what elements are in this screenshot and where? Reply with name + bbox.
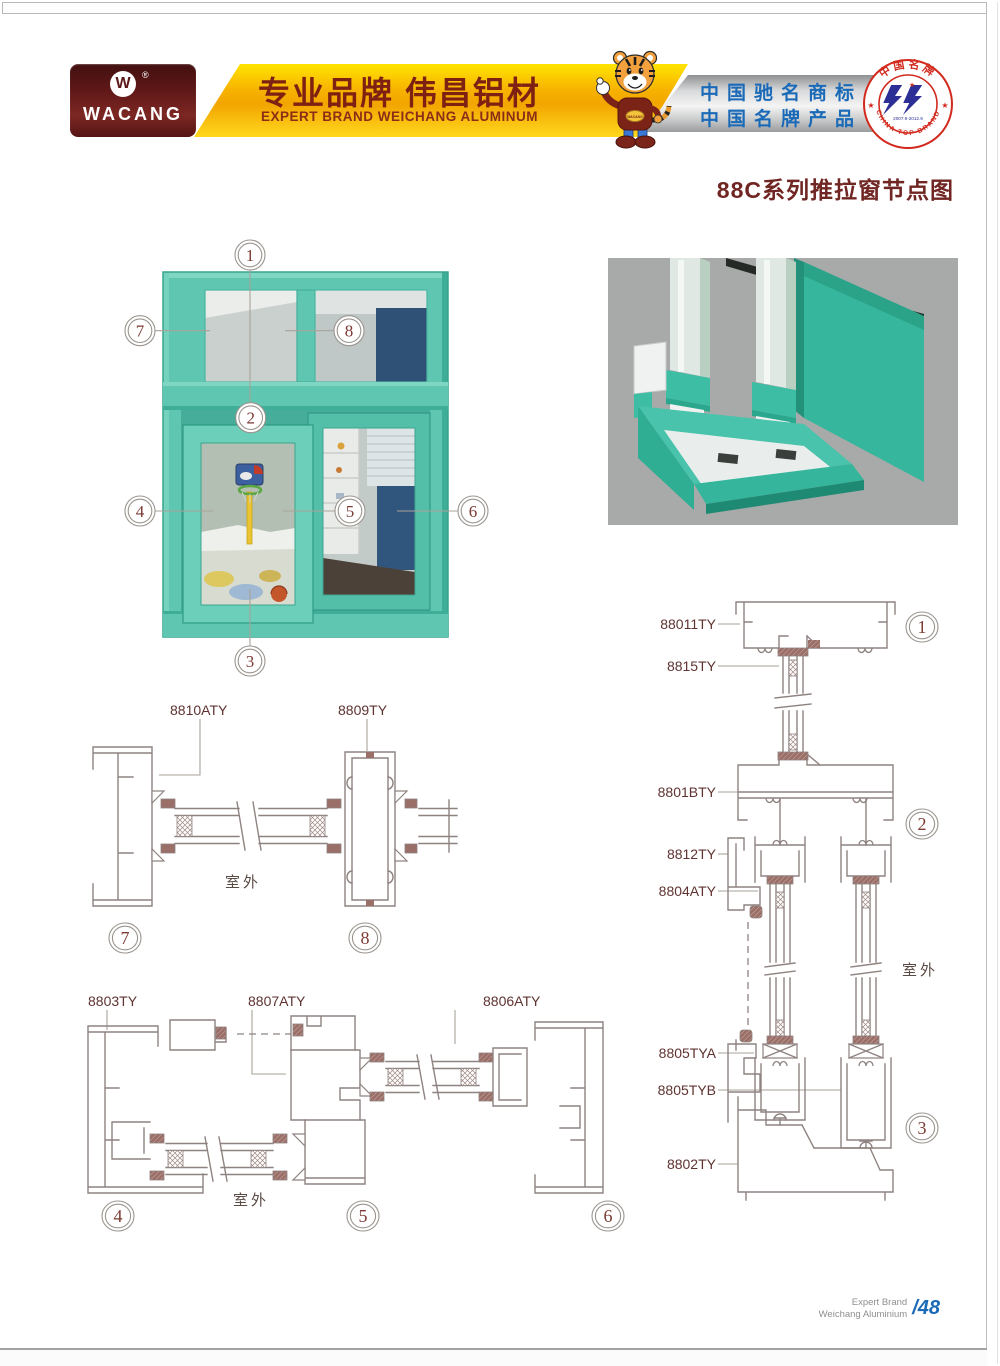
page-edge-right [986,2,987,1364]
callout-6: 6 [592,1201,624,1231]
sash-left [183,425,313,623]
mascot-shirt-text: WACANG [627,115,643,119]
section-8-profile [345,752,457,906]
svg-text:7: 7 [136,322,145,341]
part-label: 8815TY [667,658,717,674]
callout-1: 1 [235,240,265,270]
page-edge-top [2,2,987,14]
svg-text:4: 4 [136,502,145,521]
part-label: 8806ATY [483,993,541,1009]
page-edge-bottom [0,1348,987,1366]
window-illustration: 1 7 8 2 4 5 6 3 [118,238,490,680]
callout-1: 1 [906,612,938,642]
transom-pane-left [205,290,297,382]
svg-text:8: 8 [361,928,370,948]
sash-section-right [841,837,891,1148]
part-label: 8805TYA [659,1045,717,1061]
part-label: 8810ATY [170,702,228,718]
svg-text:7: 7 [121,928,130,948]
china-top-brand-badge: 中国名牌 CHINA TOP BRAND ★ ★ ★ 2007.9-2012.9 [862,58,954,150]
part-label: 8812TY [667,846,717,862]
transom-profile [738,754,893,845]
outdoor-label: 室外 [233,1192,269,1209]
part-label: 8804ATY [659,883,717,899]
callout-3: 3 [235,646,265,676]
page-edge-right-shadow [997,2,998,1364]
section-5-profile [291,1016,365,1184]
honor-line-1: 中国驰名商标 [700,78,862,105]
slogan-chinese: 专业品牌 伟昌铝材 [258,68,541,114]
callout-3: 3 [906,1113,938,1143]
part-label: 8807ATY [248,993,306,1009]
part-label: 8803TY [88,993,138,1009]
transom-pane-right [315,290,427,382]
outdoor-label: 室外 [225,874,261,891]
section-drawing-right: 88011TY 8815TY 8801BTY 8812TY 8804ATY 88… [648,592,948,1212]
badge-years: 2007.9-2012.9 [893,116,923,121]
callout-8: 8 [334,316,364,346]
callout-8: 8 [349,923,381,953]
callout-7: 7 [125,316,155,346]
section-drawing-top: 8810ATY 8809TY 室外 7 [75,695,495,960]
glass-unit [175,799,341,853]
w-logo-icon: W [110,71,136,97]
brand-logo: W ® WACANG [70,64,196,137]
registered-mark: ® [142,70,149,80]
sash-section-left [755,837,805,1120]
slogan-english: EXPERT BRAND WEICHANG ALUMINUM [261,109,538,124]
catalog-page: W ® WACANG 专业品牌 伟昌铝材 EXPERT BRAND WEICHA… [0,0,1000,1366]
footer-brand-line1: Expert Brand [819,1297,908,1309]
svg-text:6: 6 [469,502,478,521]
badge-star-right: ★ [941,101,948,110]
honor-line-2: 中国名牌产品 [700,104,862,131]
svg-text:8: 8 [345,322,354,341]
jamb-upper-profile [728,838,762,1122]
section-6-profile [535,1022,603,1193]
footer-brand-line2: Weichang Aluminium [819,1309,908,1321]
svg-text:5: 5 [346,502,355,521]
callout-7: 7 [109,923,141,953]
svg-text:1: 1 [246,246,255,265]
svg-text:2: 2 [918,814,927,834]
svg-text:3: 3 [918,1118,927,1138]
part-label: 88011TY [660,616,716,632]
tiger-mascot-icon: WACANG [588,44,683,149]
callout-5: 5 [335,496,365,526]
callout-6: 6 [458,496,488,526]
svg-text:3: 3 [246,652,255,671]
lower-glass-unit [112,1122,305,1181]
callout-4: 4 [125,496,155,526]
part-label: 8809TY [338,702,388,718]
callout-5: 5 [347,1201,379,1231]
svg-text:1: 1 [918,617,927,637]
upper-glass-unit [360,1048,527,1106]
page-number: /48 [912,1297,940,1320]
brand-name: WACANG [70,104,196,125]
outdoor-label: 室外 [902,962,938,979]
badge-star-left: ★ [867,101,874,110]
badge-star-center: ★ [909,81,915,89]
callout-2: 2 [906,809,938,839]
part-label: 8802TY [667,1156,717,1172]
head-frame-profile [736,602,895,653]
svg-text:6: 6 [604,1206,613,1226]
page-title: 88C系列推拉窗节点图 [717,171,954,205]
section-7-profile [93,747,175,906]
page-footer: Expert Brand Weichang Aluminium /48 [819,1297,940,1321]
section-drawing-bottom: 8803TY 8807ATY 8806ATY [55,988,655,1238]
callout-4: 4 [102,1201,134,1231]
footer-brand: Expert Brand Weichang Aluminium [819,1297,908,1321]
svg-text:5: 5 [359,1206,368,1226]
callout-2: 2 [236,403,266,433]
part-label: 8805TYB [658,1082,716,1098]
transom-glass-unit [775,648,811,760]
svg-text:2: 2 [246,409,255,428]
svg-text:4: 4 [114,1206,123,1226]
profile-3d-render [608,258,958,525]
part-label: 8801BTY [658,784,717,800]
